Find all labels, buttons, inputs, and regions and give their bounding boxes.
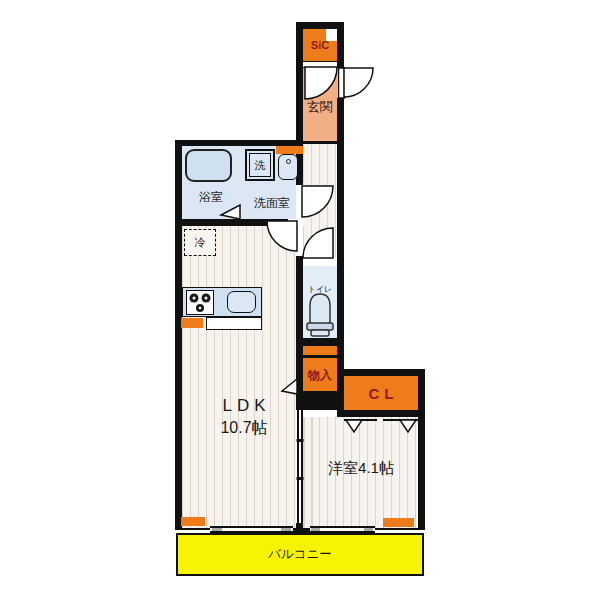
closet-folding-doors [344, 420, 418, 432]
ldk-door-arc [267, 221, 297, 251]
floor-plan: 洗 冷 [0, 0, 600, 600]
bath-label: 浴室 [184, 190, 238, 204]
balcony-label: バルコニー [174, 546, 426, 562]
plan-symbols [0, 0, 600, 600]
toilet-icon [310, 294, 330, 325]
toilet-door-arc [303, 228, 333, 258]
toilet-icon-tank [307, 323, 333, 330]
bath-door-triangle [221, 205, 240, 219]
stove-burners [190, 294, 211, 313]
western-room-label: 洋室4.1帖 [306, 458, 416, 476]
entrance-door-arc [344, 68, 373, 97]
ldk-label: LDK [184, 395, 304, 415]
storage-door-triangle [282, 379, 297, 394]
partition-tick [297, 477, 304, 480]
genkan-label: 玄関 [303, 98, 337, 114]
washroom-label: 洗面室 [244, 196, 300, 210]
ldk-size-label: 10.7帖 [184, 418, 304, 438]
toilet-label: トイレ [304, 285, 336, 295]
closet-label: CL [344, 376, 418, 410]
partition-tick [297, 439, 304, 442]
sic-door-arc [305, 67, 337, 99]
toilet-icon-base [311, 330, 329, 336]
sic-label: SiC [303, 37, 337, 53]
storage-label: 物入 [303, 362, 337, 388]
washroom-door-arc [302, 186, 333, 217]
